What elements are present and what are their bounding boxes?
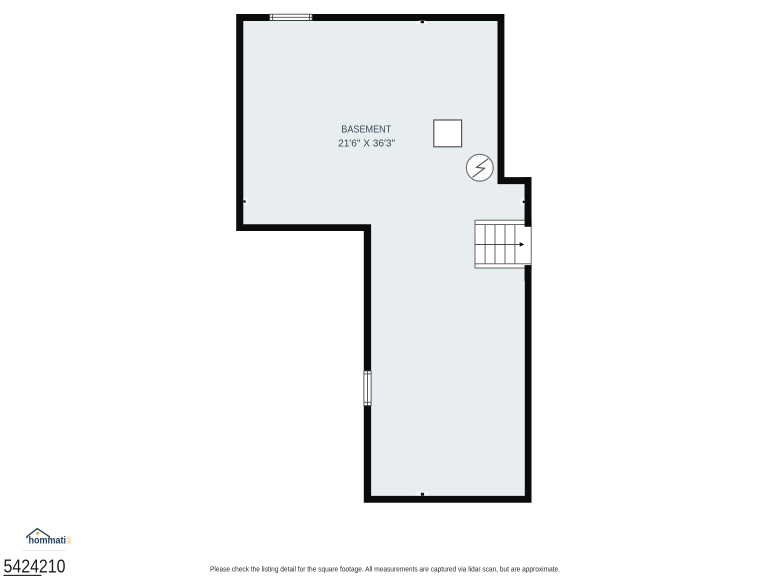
svg-text:21'6" X 36'3": 21'6" X 36'3" — [338, 138, 395, 149]
svg-text:5424210: 5424210 — [4, 556, 66, 576]
svg-text:hommati: hommati — [29, 536, 67, 547]
svg-text:Please check the listing detai: Please check the listing detail for the … — [210, 566, 560, 573]
svg-text:BASEMENT: BASEMENT — [341, 125, 392, 136]
